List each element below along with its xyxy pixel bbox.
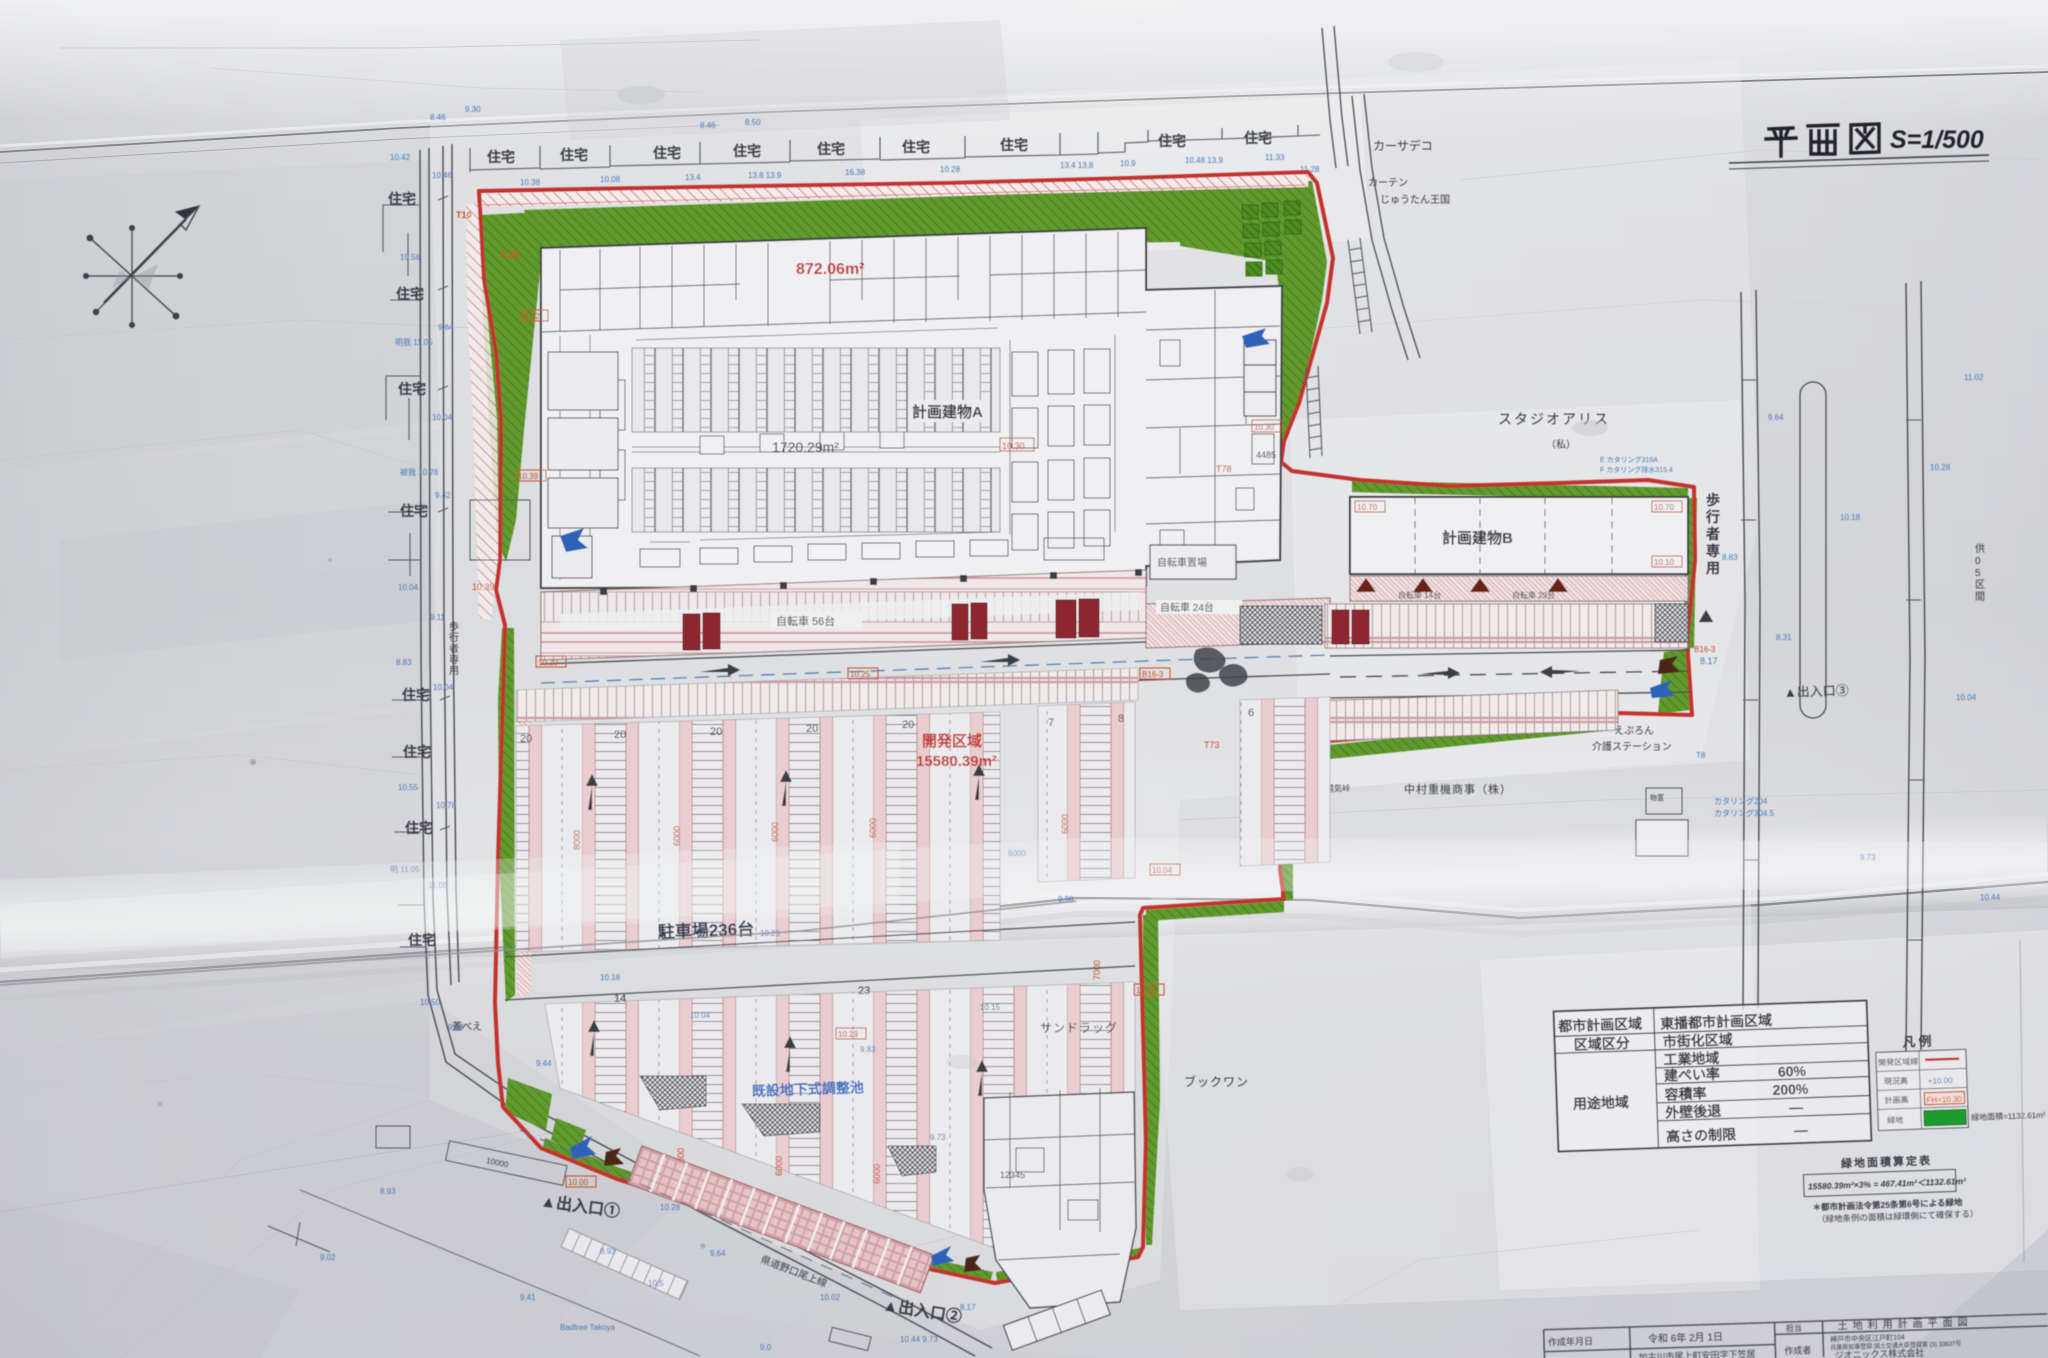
svg-text:13.8 13.9: 13.8 13.9 — [748, 171, 782, 180]
svg-text:E カタリング316A: E カタリング316A — [1600, 455, 1658, 464]
svg-text:B16-3: B16-3 — [1142, 670, 1164, 679]
svg-text:計画建物A: 計画建物A — [912, 403, 983, 421]
svg-text:872.06m²: 872.06m² — [796, 261, 865, 278]
svg-text:現況高: 現況高 — [1884, 1075, 1908, 1086]
svg-text:10.15: 10.15 — [980, 1003, 1001, 1012]
svg-text:10.56: 10.56 — [400, 253, 421, 262]
svg-text:10.39: 10.39 — [472, 582, 495, 592]
svg-text:10.39: 10.39 — [518, 472, 539, 481]
svg-text:9.11: 9.11 — [430, 613, 446, 622]
svg-text:8: 8 — [1118, 713, 1124, 725]
svg-text:▲出入口③: ▲出入口③ — [1784, 683, 1849, 700]
svg-text:自転車 24台: 自転車 24台 — [1160, 601, 1214, 614]
svg-text:20: 20 — [806, 723, 818, 735]
svg-text:住宅: 住宅 — [398, 381, 426, 397]
svg-text:Badlree Takoya: Badlree Takoya — [560, 1323, 616, 1332]
svg-text:緑地: 緑地 — [1887, 1115, 1903, 1126]
svg-text:容積率: 容積率 — [1663, 1085, 1707, 1102]
svg-text:6: 6 — [1248, 707, 1254, 719]
svg-text:T73: T73 — [1204, 740, 1220, 750]
svg-text:10.25: 10.25 — [850, 670, 871, 679]
svg-text:4485: 4485 — [1256, 450, 1276, 460]
svg-text:6000: 6000 — [872, 1164, 882, 1184]
svg-text:6000: 6000 — [672, 826, 682, 846]
svg-text:10.04: 10.04 — [433, 683, 454, 692]
svg-text:市街化区域: 市街化区域 — [1662, 1031, 1733, 1049]
svg-text:12345: 12345 — [1000, 1170, 1025, 1180]
svg-text:13.4 13.8: 13.4 13.8 — [1060, 161, 1094, 170]
svg-text:10.5: 10.5 — [648, 1279, 664, 1288]
svg-text:10.10: 10.10 — [1654, 558, 1675, 567]
svg-text:10.18: 10.18 — [1840, 513, 1861, 522]
svg-text:16.38: 16.38 — [845, 168, 866, 177]
svg-text:9.64: 9.64 — [438, 323, 454, 332]
svg-text:10.08: 10.08 — [600, 175, 621, 184]
svg-text:区域区分: 区域区分 — [1574, 1035, 1631, 1053]
svg-text:住宅: 住宅 — [902, 139, 930, 155]
svg-text:23: 23 — [858, 985, 870, 997]
svg-text:9.64: 9.64 — [710, 1249, 726, 1258]
svg-text:10.00: 10.00 — [568, 1178, 589, 1187]
svg-text:明我 11.05: 明我 11.05 — [395, 337, 433, 347]
svg-text:介護ステーション: 介護ステーション — [1592, 740, 1672, 753]
svg-text:9.73: 9.73 — [930, 1133, 946, 1142]
svg-text:自転車 29台: 自転車 29台 — [1512, 590, 1555, 600]
svg-text:（私）: （私） — [1546, 439, 1576, 451]
svg-text:10.04: 10.04 — [432, 413, 453, 422]
svg-text:10.44: 10.44 — [1980, 893, 2001, 902]
svg-text:9.30: 9.30 — [465, 105, 481, 114]
svg-text:住宅: 住宅 — [653, 145, 681, 161]
svg-text:開発区域: 開発区域 — [922, 732, 982, 750]
svg-text:―: ― — [1794, 1122, 1809, 1138]
svg-text:計画高: 計画高 — [1884, 1094, 1908, 1105]
svg-text:7000: 7000 — [1092, 960, 1102, 980]
svg-text:10.70: 10.70 — [1654, 503, 1675, 512]
svg-text:9.83: 9.83 — [860, 1045, 876, 1054]
svg-text:8.46: 8.46 — [700, 121, 716, 130]
svg-text:T10: T10 — [456, 210, 472, 220]
svg-text:住宅: 住宅 — [1000, 137, 1028, 153]
svg-text:10.30: 10.30 — [1254, 423, 1275, 432]
svg-text:開発区域線: 開発区域線 — [1878, 1056, 1918, 1067]
svg-text:15580.39m²: 15580.39m² — [916, 753, 997, 770]
svg-text:11.02: 11.02 — [1964, 373, 1984, 382]
svg-text:中村重機商事（株）: 中村重機商事（株） — [1404, 782, 1512, 796]
svg-text:F カタリング排水315.4: F カタリング排水315.4 — [1600, 465, 1673, 474]
svg-text:9.41: 9.41 — [520, 1293, 536, 1302]
svg-text:凡例: 凡例 — [1902, 1033, 1935, 1049]
svg-text:0.30: 0.30 — [500, 250, 520, 261]
svg-text:カタリング304.5: カタリング304.5 — [1714, 808, 1775, 818]
svg-text:9.02: 9.02 — [320, 1253, 336, 1262]
svg-text:自転車置場: 自転車置場 — [1157, 556, 1207, 569]
svg-text:S=1/500: S=1/500 — [1890, 126, 1984, 154]
svg-text:8.31: 8.31 — [1776, 633, 1792, 642]
svg-text:住宅: 住宅 — [396, 286, 424, 302]
svg-text:10.9: 10.9 — [1120, 159, 1136, 168]
svg-text:―: ― — [1789, 1099, 1804, 1115]
svg-text:T78: T78 — [1216, 464, 1232, 474]
svg-text:じゅうたん王国: じゅうたん王国 — [1380, 194, 1450, 206]
svg-text:物置: 物置 — [1650, 793, 1664, 802]
svg-text:8.17: 8.17 — [960, 1303, 976, 1312]
svg-text:6000: 6000 — [770, 822, 780, 842]
svg-text:住宅: 住宅 — [388, 191, 416, 207]
svg-text:住宅: 住宅 — [402, 687, 430, 703]
svg-text:14: 14 — [614, 993, 626, 1005]
svg-text:200%: 200% — [1772, 1081, 1809, 1098]
svg-text:住宅: 住宅 — [405, 820, 433, 836]
svg-text:計画建物B: 計画建物B — [1442, 529, 1513, 547]
svg-text:8.83: 8.83 — [1722, 553, 1738, 562]
svg-text:60%: 60% — [1778, 1063, 1807, 1080]
svg-text:10.38: 10.38 — [520, 178, 541, 187]
svg-text:10.04: 10.04 — [398, 583, 419, 592]
svg-text:+10.00: +10.00 — [1928, 1076, 1954, 1086]
svg-text:8.83: 8.83 — [396, 658, 412, 667]
svg-text:10.39: 10.39 — [1136, 986, 1157, 995]
svg-text:10.29: 10.29 — [838, 1030, 859, 1039]
svg-text:10.50: 10.50 — [420, 998, 441, 1007]
svg-text:歩行者専用: 歩行者専用 — [449, 620, 459, 677]
svg-text:10.48 13.9: 10.48 13.9 — [1185, 156, 1223, 165]
svg-text:ブックワン: ブックワン — [1184, 1074, 1249, 1089]
svg-text:住宅: 住宅 — [817, 141, 845, 157]
svg-text:1720.29m²: 1720.29m² — [772, 439, 839, 455]
svg-text:歩行者専用: 歩行者専用 — [1705, 492, 1720, 576]
svg-text:11.33: 11.33 — [1265, 153, 1285, 162]
svg-text:住宅: 住宅 — [487, 149, 515, 165]
svg-text:8.93: 8.93 — [600, 1247, 616, 1256]
svg-text:10.28: 10.28 — [660, 1203, 681, 1212]
svg-text:10.28: 10.28 — [1930, 463, 1951, 472]
svg-text:FH=10.30: FH=10.30 — [1926, 1095, 1962, 1105]
svg-text:カタリング204: カタリング204 — [1714, 796, 1768, 806]
svg-text:10.04: 10.04 — [1956, 693, 1977, 702]
svg-text:20: 20 — [520, 733, 532, 745]
svg-text:10.04: 10.04 — [690, 1011, 711, 1020]
svg-text:10.02: 10.02 — [820, 1293, 841, 1302]
svg-text:作成者: 作成者 — [1784, 1344, 1811, 1356]
svg-text:T8: T8 — [1696, 751, 1706, 760]
svg-text:担当: 担当 — [1786, 1323, 1802, 1333]
svg-text:カーサデコ: カーサデコ — [1373, 138, 1433, 153]
svg-text:住宅: 住宅 — [560, 147, 588, 163]
svg-text:20: 20 — [614, 729, 626, 741]
svg-text:高さの制限: 高さの制限 — [1666, 1126, 1737, 1144]
svg-text:8.93: 8.93 — [380, 1187, 396, 1196]
svg-text:9.0: 9.0 — [760, 1343, 772, 1352]
svg-text:20: 20 — [902, 719, 914, 731]
svg-text:6000: 6000 — [868, 818, 878, 838]
svg-text:8000: 8000 — [572, 830, 582, 850]
svg-text:10.42: 10.42 — [390, 153, 411, 162]
svg-text:住宅: 住宅 — [733, 143, 761, 159]
svg-text:8.46: 8.46 — [430, 113, 446, 122]
svg-text:9.42: 9.42 — [435, 491, 451, 500]
svg-text:10.20: 10.20 — [538, 658, 559, 667]
svg-text:えぷろん: えぷろん — [1614, 725, 1654, 737]
svg-text:作成年月日: 作成年月日 — [1548, 1335, 1593, 1347]
svg-text:被我 10.76: 被我 10.76 — [400, 467, 439, 477]
svg-text:7: 7 — [1048, 717, 1054, 729]
svg-text:9.44: 9.44 — [536, 1059, 552, 1068]
svg-text:6000: 6000 — [774, 1156, 784, 1176]
svg-text:建ぺい率: 建ぺい率 — [1664, 1066, 1721, 1084]
svg-text:10.28: 10.28 — [940, 165, 961, 174]
svg-text:都市計画区域: 都市計画区域 — [1557, 1015, 1643, 1034]
svg-text:10.70: 10.70 — [1357, 503, 1378, 512]
svg-text:自転車 14台: 自転車 14台 — [1398, 590, 1441, 600]
svg-text:8.17: 8.17 — [1700, 656, 1718, 666]
svg-text:10.18: 10.18 — [600, 973, 621, 982]
svg-text:工業地域: 工業地域 — [1663, 1050, 1720, 1068]
svg-text:10.78: 10.78 — [436, 801, 457, 810]
svg-text:B16-3: B16-3 — [1694, 645, 1716, 654]
svg-text:外壁後退: 外壁後退 — [1665, 1103, 1722, 1121]
svg-text:6000: 6000 — [1060, 814, 1070, 834]
svg-text:10.30: 10.30 — [1002, 441, 1025, 451]
svg-text:用途地域: 用途地域 — [1573, 1094, 1630, 1112]
svg-text:10.44 9.73: 10.44 9.73 — [900, 1335, 938, 1344]
svg-text:9.64: 9.64 — [1768, 413, 1784, 422]
svg-text:20: 20 — [710, 726, 722, 738]
svg-text:蓋べえ: 蓋べえ — [452, 1021, 482, 1033]
svg-text:住宅: 住宅 — [408, 932, 436, 948]
svg-text:8.82: 8.82 — [524, 312, 540, 321]
svg-text:13.4: 13.4 — [685, 173, 701, 182]
svg-text:10.46: 10.46 — [432, 171, 453, 180]
svg-text:8.50: 8.50 — [745, 118, 761, 127]
svg-text:10.55: 10.55 — [398, 783, 419, 792]
svg-text:住宅: 住宅 — [400, 503, 428, 519]
svg-text:自転車 56台: 自転車 56台 — [776, 614, 835, 628]
svg-text:住宅: 住宅 — [403, 744, 431, 760]
svg-text:サンドラッグ: サンドラッグ — [1040, 1021, 1118, 1035]
